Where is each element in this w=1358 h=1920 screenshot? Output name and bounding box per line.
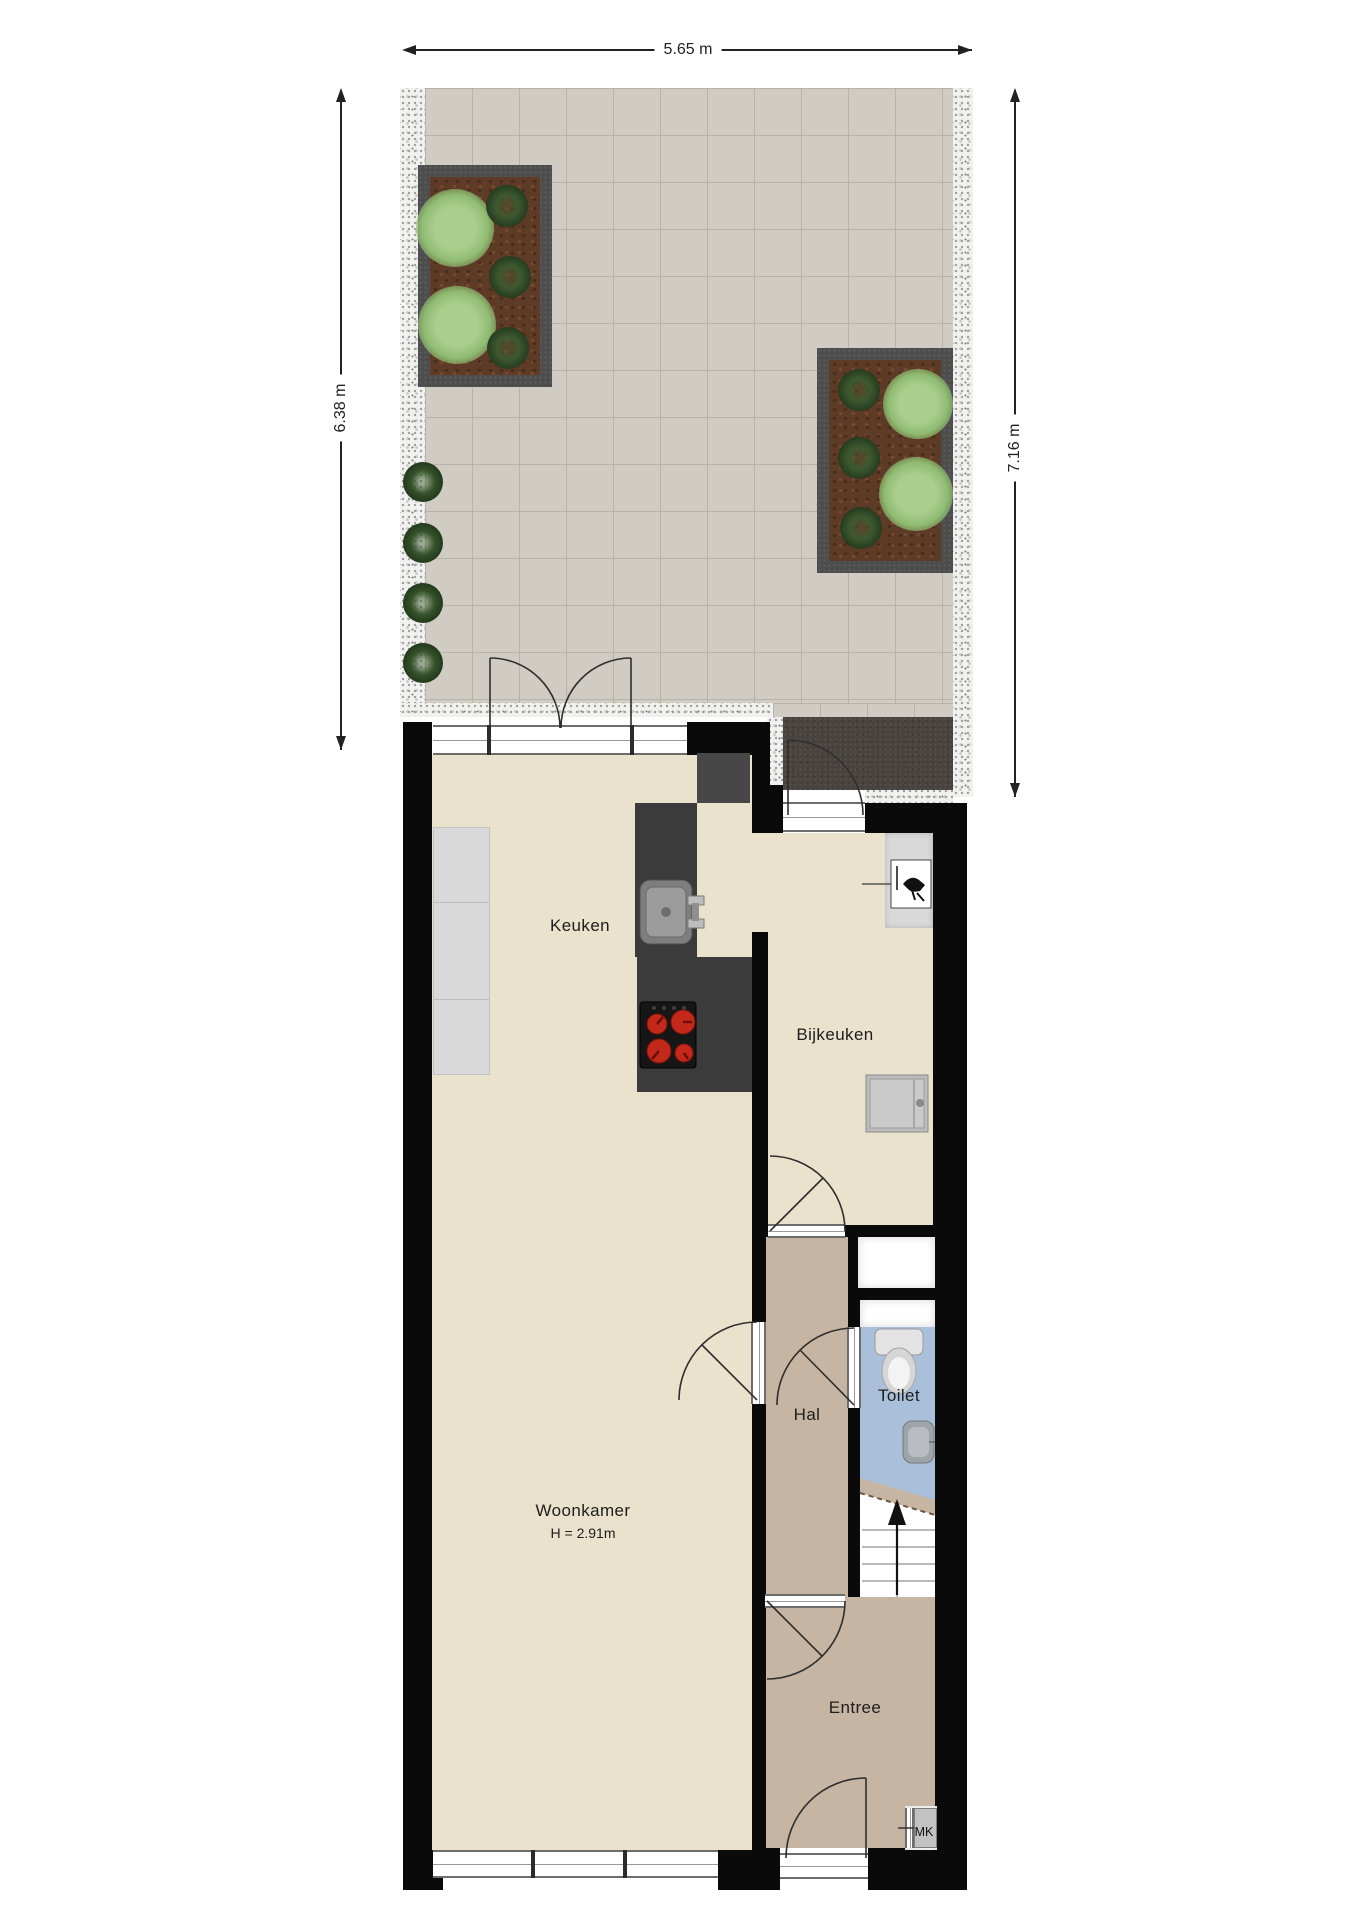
bush-icon: [487, 327, 529, 369]
garden-gravel-bottom: [400, 703, 773, 717]
kitchen-counter-upper: [635, 803, 697, 957]
hal-entree-door-frame: [765, 1594, 845, 1608]
kitchen-cupboard: [433, 827, 490, 1075]
window-mullion: [623, 1850, 627, 1878]
arrow-right-icon: [958, 45, 972, 55]
garden-gravel-under-path: [865, 788, 953, 803]
window-mullion: [487, 725, 491, 755]
woonkamer-hal-door-frame: [751, 1322, 766, 1404]
wall-segment: [868, 1848, 967, 1890]
garden-paving-right: [773, 703, 953, 717]
dimension-label-left: 6.38 m: [331, 375, 351, 442]
shrub-icon: [416, 189, 494, 267]
room-label-hal: Hal: [794, 1405, 821, 1425]
room-label-bijkeuken: Bijkeuken: [796, 1025, 873, 1045]
arrow-down-icon: [336, 736, 346, 750]
bush-icon: [840, 507, 882, 549]
room-label-entree: Entree: [829, 1698, 882, 1718]
bush-icon: [838, 369, 880, 411]
hedge-bush-icon: [403, 583, 443, 623]
meterkast-door-frame: [905, 1808, 914, 1848]
wall-segment: [403, 722, 432, 1890]
bijkeuken-hal-door-frame: [768, 1224, 845, 1238]
window-mullion: [531, 1850, 535, 1878]
room-label-meterkast: MK: [915, 1825, 934, 1839]
dimension-label-top: 5.65 m: [655, 40, 722, 60]
kitchen-counter-lower: [637, 957, 752, 1092]
wall-segment: [858, 1288, 935, 1300]
kitchen-tall-cabinet: [697, 753, 750, 803]
room-note-ceiling-height: H = 2.91m: [551, 1525, 616, 1541]
wall-segment: [933, 803, 967, 1848]
toilet-door-frame: [847, 1327, 861, 1408]
boiler-recess: [885, 833, 933, 928]
window-mullion: [630, 725, 634, 755]
livingroom-window: [433, 1850, 718, 1878]
wall-segment: [718, 1848, 780, 1890]
floorplan-canvas: Keuken Bijkeuken Hal Toilet Woonkamer H …: [0, 0, 1358, 1920]
dimension-label-right: 7.16 m: [1005, 415, 1025, 482]
niche-lower: [860, 1300, 935, 1327]
wall-segment: [848, 1407, 860, 1600]
hedge-bush-icon: [403, 643, 443, 683]
room-label-keuken: Keuken: [550, 916, 610, 936]
bush-icon: [489, 256, 531, 298]
bush-icon: [838, 437, 880, 479]
room-label-woonkamer: Woonkamer: [536, 1501, 631, 1521]
arrow-left-icon: [402, 45, 416, 55]
shrub-icon: [883, 369, 953, 439]
hedge-bush-icon: [403, 462, 443, 502]
floor-bijkeuken-lower: [768, 932, 933, 1225]
arrow-up-icon: [1010, 88, 1020, 102]
niche-upper: [858, 1237, 935, 1288]
room-label-toilet: Toilet: [878, 1386, 920, 1406]
bush-icon: [486, 185, 528, 227]
backdoor-frame: [783, 802, 865, 832]
shrub-icon: [418, 286, 496, 364]
shrub-icon: [879, 457, 953, 531]
arrow-down-icon: [1010, 783, 1020, 797]
arrow-up-icon: [336, 88, 346, 102]
garden-gravel-right: [953, 88, 973, 797]
front-door-frame: [780, 1853, 868, 1879]
kitchen-window: [433, 725, 687, 755]
side-path: [783, 717, 953, 790]
hedge-bush-icon: [403, 523, 443, 563]
